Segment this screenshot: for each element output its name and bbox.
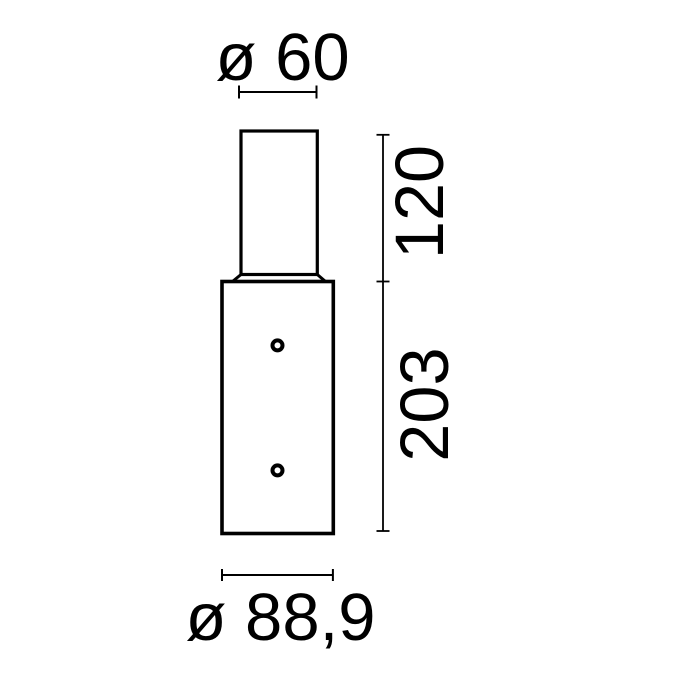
svg-text:120: 120: [381, 145, 458, 259]
svg-text:ø 88,9: ø 88,9: [186, 580, 376, 655]
svg-text:203: 203: [386, 347, 463, 461]
svg-text:ø 60: ø 60: [216, 20, 350, 95]
